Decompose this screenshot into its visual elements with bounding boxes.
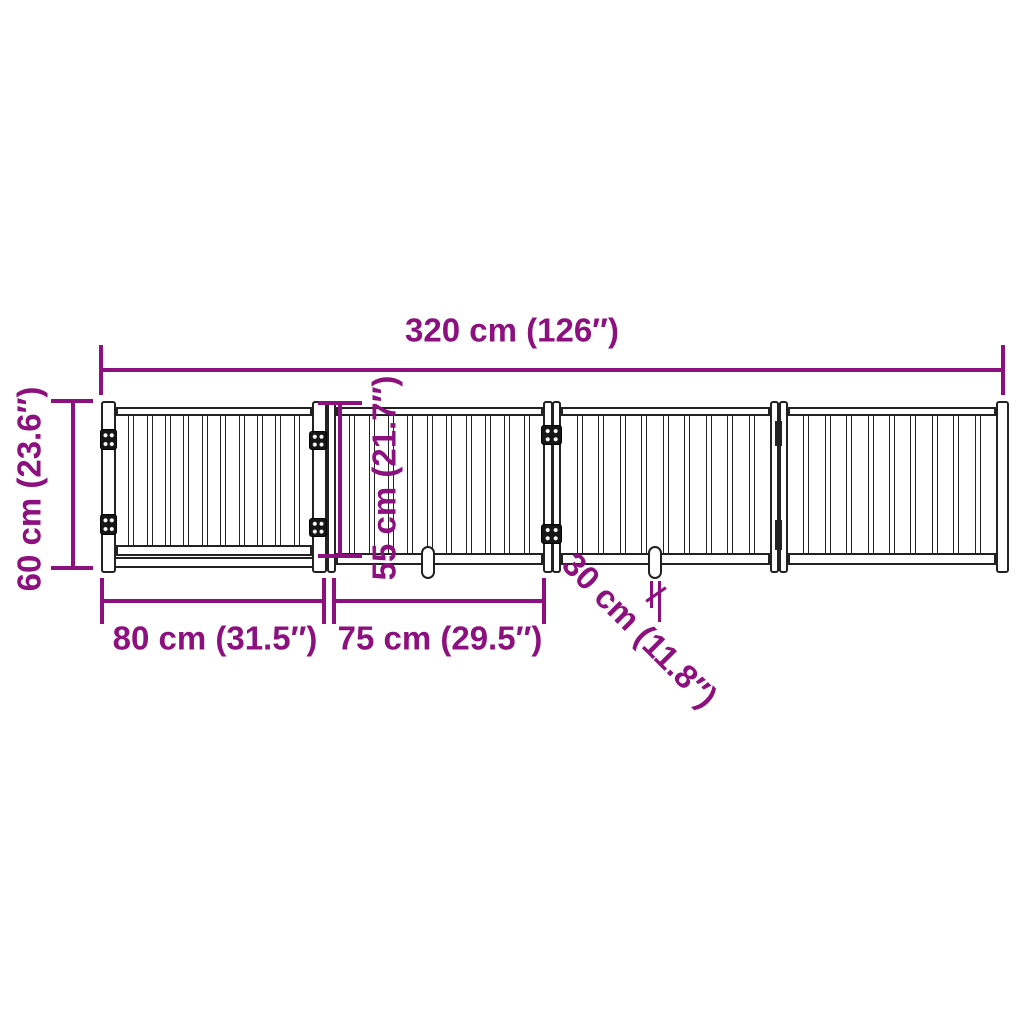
panel-1-top-rail: [116, 407, 312, 416]
panel-2-slat: [407, 413, 413, 556]
gate-post-2: [312, 401, 327, 573]
dim-tick-total-width-left: [99, 345, 103, 395]
dim-tick-inner-height-bottom: [318, 554, 362, 558]
dim-label-section1-width: 80 cm (31.5″): [113, 622, 318, 655]
dim-line-total-height: [71, 401, 75, 570]
panel-2-slat: [446, 413, 452, 556]
panel-1-slat: [183, 413, 189, 547]
dim-tick-inner-height-top: [318, 401, 362, 405]
dim-line-inner-height: [338, 403, 342, 558]
panel-1-slat: [202, 413, 208, 547]
hinge: [100, 429, 117, 450]
panel-1-slat: [220, 413, 226, 547]
panel-3-slat: [727, 413, 733, 556]
dim-tick-section1-left: [100, 578, 104, 624]
hinge: [541, 524, 562, 544]
dim-line-total-width: [101, 368, 1005, 372]
panel-3-slat: [749, 413, 755, 556]
hinge: [100, 514, 117, 535]
gate-post-3: [327, 401, 336, 573]
hinge: [309, 518, 327, 537]
panel-4-slat: [868, 413, 874, 556]
dim-tick-total-height-bottom: [51, 566, 93, 570]
panel-1-slat: [147, 413, 153, 547]
support-foot: [421, 546, 435, 579]
panel-3-slat: [577, 413, 583, 556]
panel-3-slat: [641, 413, 647, 556]
panel-4-bottom-rail: [788, 553, 996, 565]
panel-4-slat: [803, 413, 809, 556]
panel-2-slat: [427, 413, 433, 556]
product-dimension-diagram: 320 cm (126″) 60 cm (23.6″) 55 cm (21.7″…: [0, 0, 1024, 1024]
panel-3-top-rail: [561, 407, 770, 416]
dim-tick-total-height-top: [51, 399, 93, 403]
dim-tick-section1-right: [322, 578, 326, 624]
dim-tick-section2-left: [332, 578, 336, 624]
dim-label-total-height: 60 cm (23.6″): [13, 387, 46, 592]
panel-1-slat: [239, 413, 245, 547]
support-foot: [648, 546, 662, 579]
panel-2-slat: [349, 413, 355, 556]
panel-2-slat: [485, 413, 491, 556]
gate-post-8: [996, 401, 1009, 573]
panel-2-slat: [466, 413, 472, 556]
panel-2-slat: [524, 413, 530, 556]
panel-1-slat: [128, 413, 134, 547]
dim-tick-section2-right: [542, 578, 546, 624]
panel-1-slat: [165, 413, 171, 547]
dim-ext-foot-right: [658, 581, 661, 622]
panel-1-slat: [294, 413, 300, 547]
dim-line-section1: [102, 599, 324, 603]
dim-slash-foot: [645, 586, 666, 602]
panel-3-slat: [663, 413, 669, 556]
panel-1-bottom-rail: [116, 545, 312, 556]
panel-4-slat: [932, 413, 938, 556]
panel-3-slat: [684, 413, 690, 556]
panel-1-slat: [257, 413, 263, 547]
panel-1-slat: [275, 413, 281, 547]
panel-2-slat: [504, 413, 510, 556]
panel-4-top-rail: [788, 407, 996, 416]
dim-label-total-width: 320 cm (126″): [405, 314, 619, 347]
panel-4-slat: [846, 413, 852, 556]
fold-joint-hinge-segment: [775, 421, 782, 446]
door-bottom-bar: [101, 557, 334, 568]
panel-4-slat: [910, 413, 916, 556]
hinge: [309, 431, 327, 450]
panel-3-slat: [706, 413, 712, 556]
panel-4-slat: [889, 413, 895, 556]
panel-3-slat: [598, 413, 604, 556]
hinge: [541, 425, 562, 445]
dim-label-foot-length: 30 cm (11.8″): [557, 547, 724, 714]
panel-4-slat: [975, 413, 981, 556]
panel-4-slat: [953, 413, 959, 556]
dim-line-section2: [334, 599, 544, 603]
dim-label-inner-height: 55 cm (21.7″): [368, 376, 401, 581]
fold-joint-hinge-segment: [775, 520, 782, 550]
panel-3-slat: [620, 413, 626, 556]
panel-4-slat: [825, 413, 831, 556]
dim-label-section2-width: 75 cm (29.5″): [338, 622, 543, 655]
gate-post-1: [101, 401, 116, 573]
dim-tick-total-width-right: [1001, 345, 1005, 395]
